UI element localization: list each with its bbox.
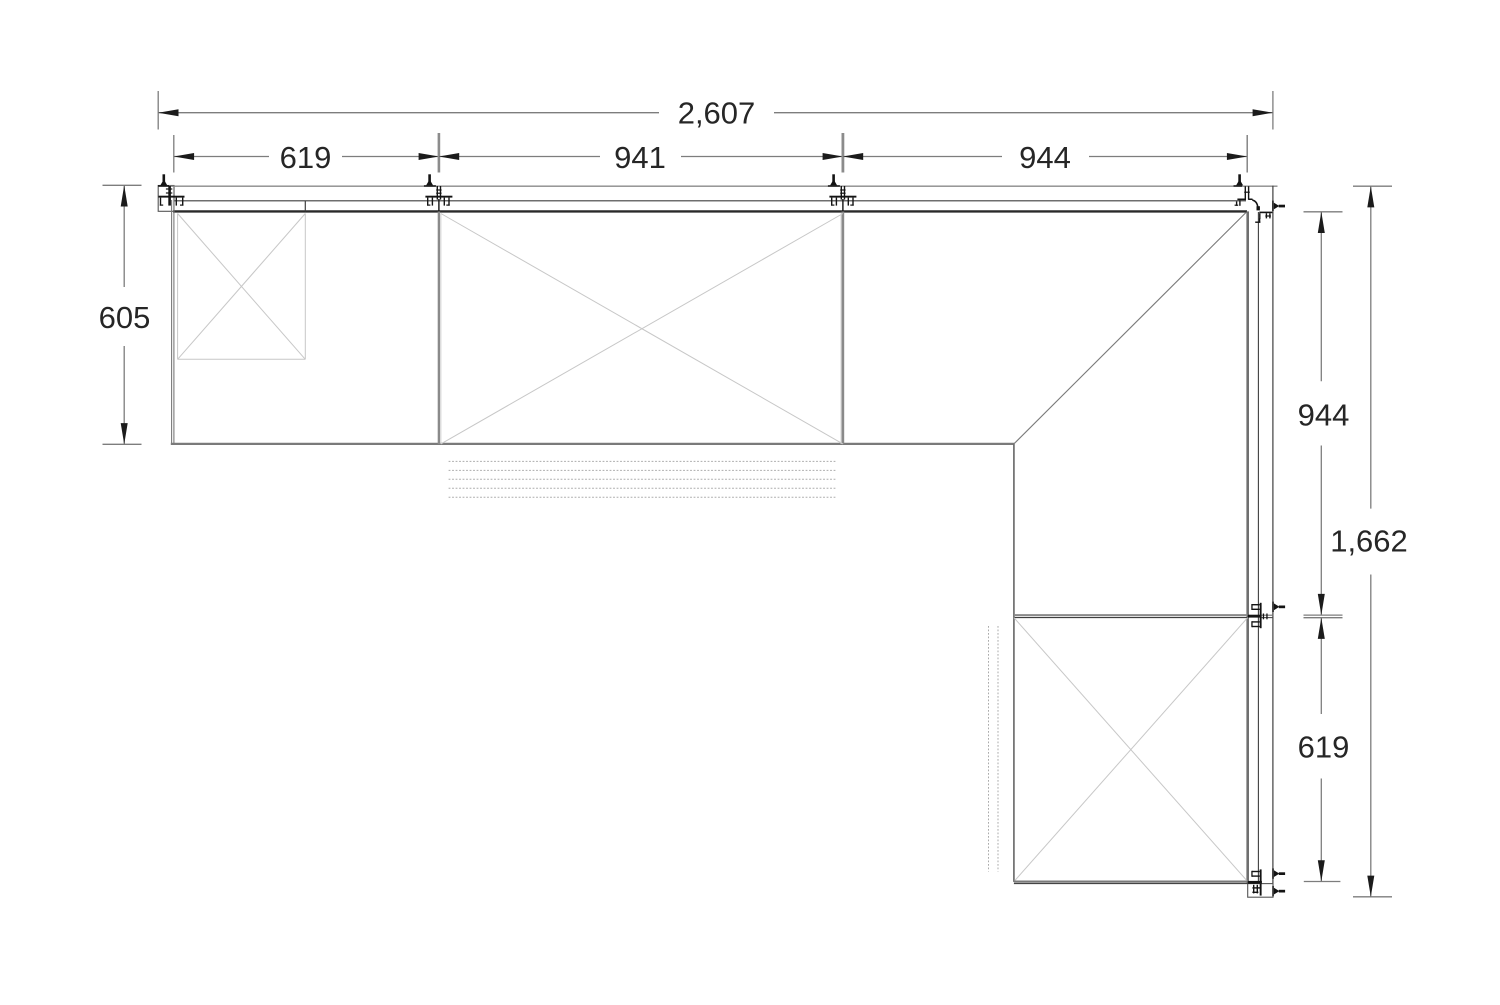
svg-text:941: 941 bbox=[614, 140, 666, 175]
svg-text:605: 605 bbox=[99, 300, 151, 335]
svg-text:619: 619 bbox=[280, 140, 332, 175]
svg-text:2,607: 2,607 bbox=[678, 96, 756, 131]
svg-text:944: 944 bbox=[1019, 140, 1071, 175]
svg-text:619: 619 bbox=[1298, 729, 1350, 764]
svg-text:1,662: 1,662 bbox=[1330, 523, 1408, 558]
svg-text:944: 944 bbox=[1298, 397, 1350, 432]
